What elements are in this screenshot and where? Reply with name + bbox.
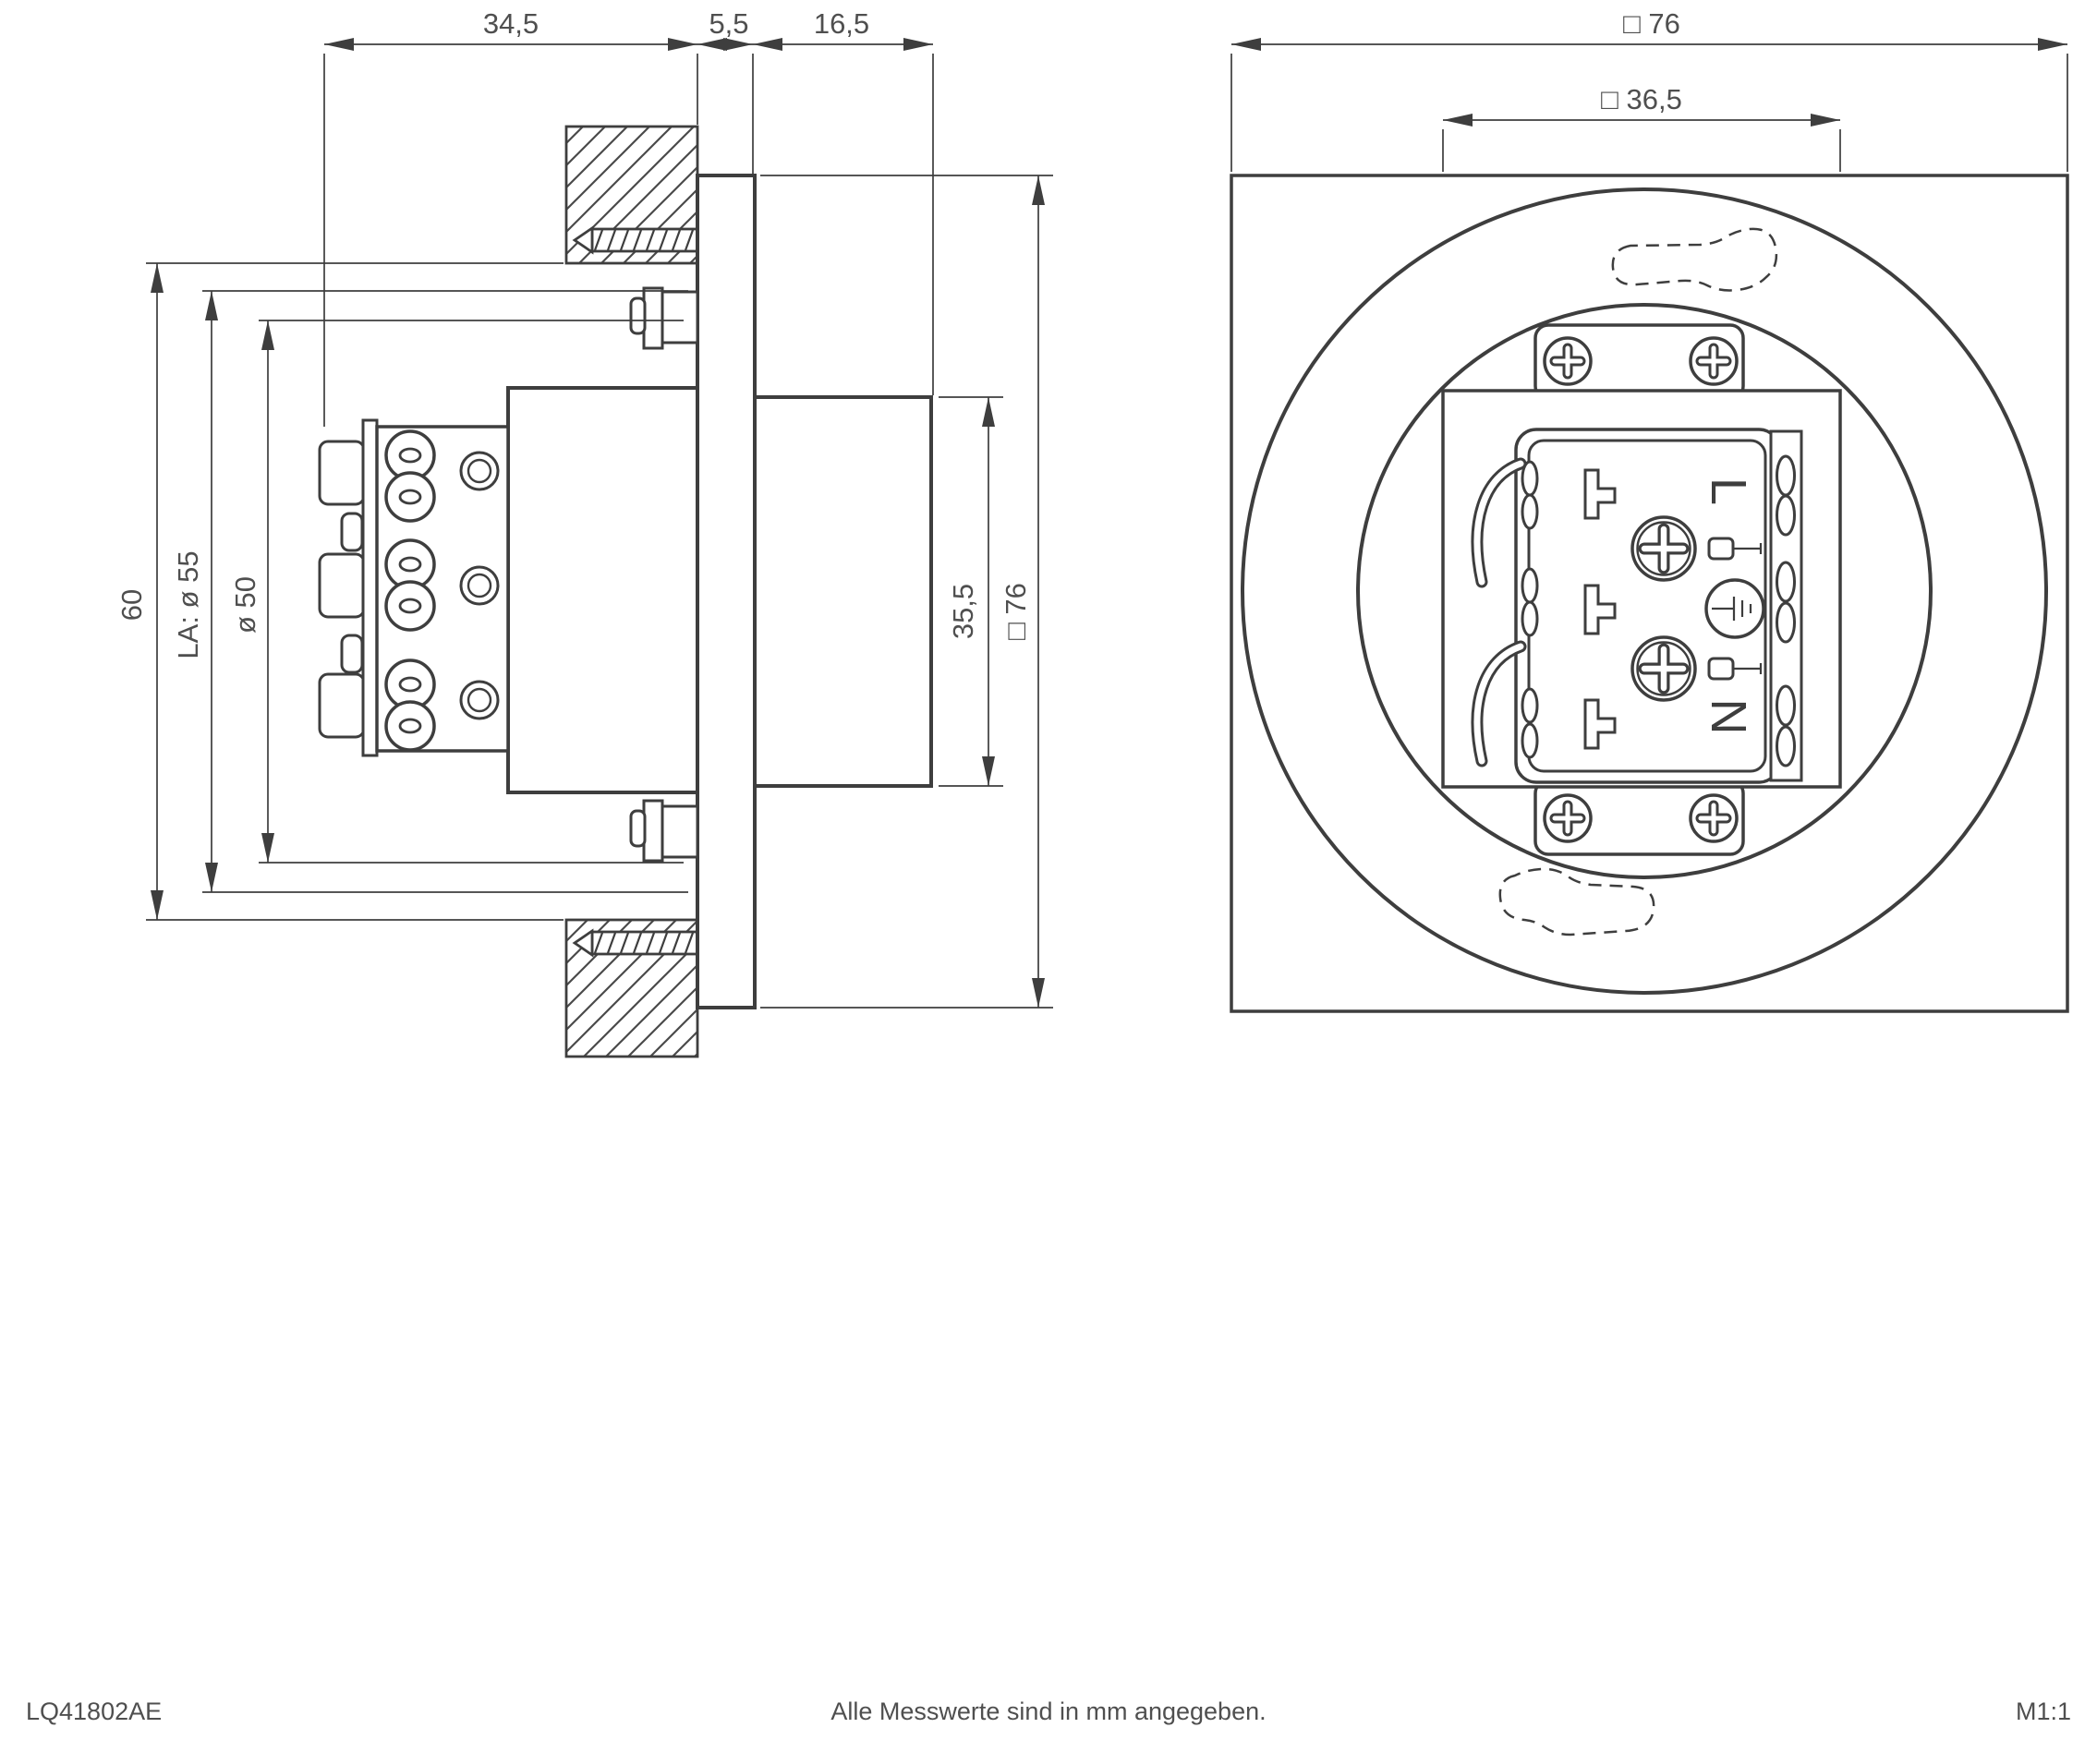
terminal-tab xyxy=(320,441,364,504)
phillips-screw-icon xyxy=(1545,795,1591,841)
terminal-screw-icon xyxy=(1632,517,1695,580)
recessed-housing xyxy=(508,388,697,792)
footer-article-number: LQ41802AE xyxy=(26,1698,162,1725)
footer-note: Alle Messwerte sind in mm angegeben. xyxy=(830,1698,1266,1725)
dim-front-height-label: 35,5 xyxy=(947,584,979,639)
contact-strip xyxy=(1771,431,1801,780)
technical-drawing-page: 34,5 5,5 16,5 60 LA: ø 55 ø 50 35,5 □ 76 xyxy=(0,0,2097,1764)
clamp-upper xyxy=(631,288,697,348)
dim-plate-size-side-label: □ 76 xyxy=(1000,583,1032,640)
side-view: 34,5 5,5 16,5 60 LA: ø 55 ø 50 35,5 □ 76 xyxy=(115,7,1053,1057)
terminal-tab xyxy=(320,554,364,617)
phillips-screw-icon xyxy=(1691,338,1737,384)
terminal-live-label: L xyxy=(1701,477,1756,505)
wire-ports-left xyxy=(1522,462,1537,757)
front-body xyxy=(755,397,931,786)
dim-overall-height-label: 60 xyxy=(115,589,148,621)
terminal-neutral-label: N xyxy=(1701,699,1756,735)
terminal-screw-icon xyxy=(1632,637,1695,700)
drawing-canvas: 34,5 5,5 16,5 60 LA: ø 55 ø 50 35,5 □ 76 xyxy=(0,0,2097,1764)
terminal-connector-front: L N xyxy=(1477,429,1801,782)
dim-rear-depth-label: 34,5 xyxy=(483,7,539,40)
dim-inner-square-label: □ 36,5 xyxy=(1601,83,1682,115)
footer: LQ41802AE Alle Messwerte sind in mm ange… xyxy=(26,1698,2071,1725)
dim-plate-size-front-label: □ 76 xyxy=(1623,7,1680,40)
terminal-tab xyxy=(320,674,364,737)
front-view: L N □ 76 □ 36,5 xyxy=(1231,7,2067,1011)
front-plate-edge xyxy=(697,175,755,1008)
terminal-spine xyxy=(363,420,377,755)
wire-ports xyxy=(386,431,434,750)
footer-scale: M1:1 xyxy=(2016,1698,2071,1725)
clamp-lower xyxy=(631,801,697,861)
dim-body-diameter-label: ø 50 xyxy=(229,576,261,634)
earth-symbol-icon xyxy=(1706,580,1764,637)
dim-cutout-diameter-label: LA: ø 55 xyxy=(172,550,204,658)
terminal-block-side xyxy=(320,420,508,755)
front-view-dimensions: □ 76 □ 36,5 xyxy=(1231,7,2067,172)
phillips-screw-icon xyxy=(1691,795,1737,841)
dim-wall-thickness-label: 5,5 xyxy=(709,7,748,40)
dim-front-depth-label: 16,5 xyxy=(814,7,869,40)
phillips-screw-icon xyxy=(1545,338,1591,384)
